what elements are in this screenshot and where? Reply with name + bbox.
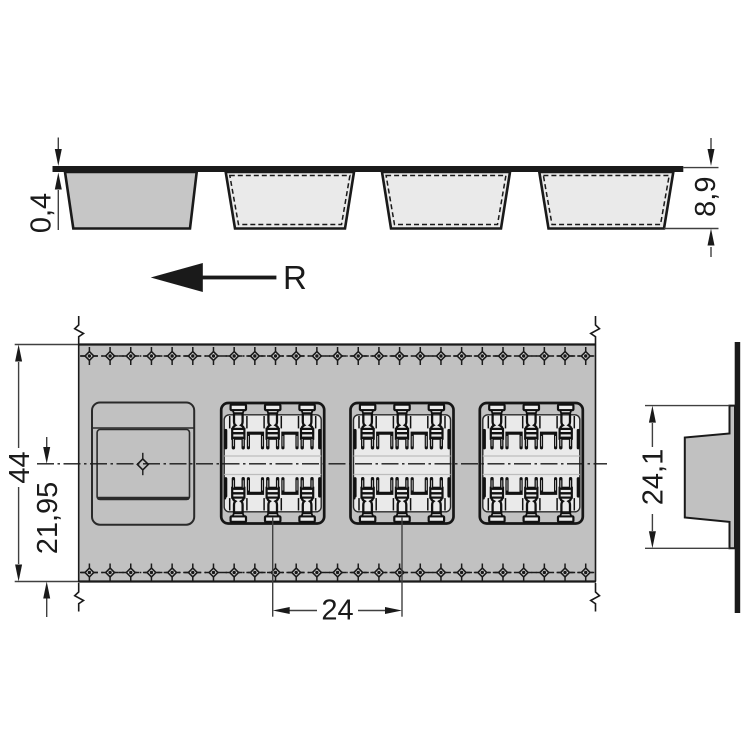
svg-text:24: 24 [321, 595, 353, 627]
svg-text:44: 44 [4, 451, 36, 483]
svg-text:24,1: 24,1 [638, 449, 670, 505]
svg-text:0,4: 0,4 [26, 193, 58, 233]
svg-text:8,9: 8,9 [690, 177, 722, 217]
svg-text:R: R [283, 259, 307, 296]
svg-text:21,95: 21,95 [32, 482, 64, 555]
